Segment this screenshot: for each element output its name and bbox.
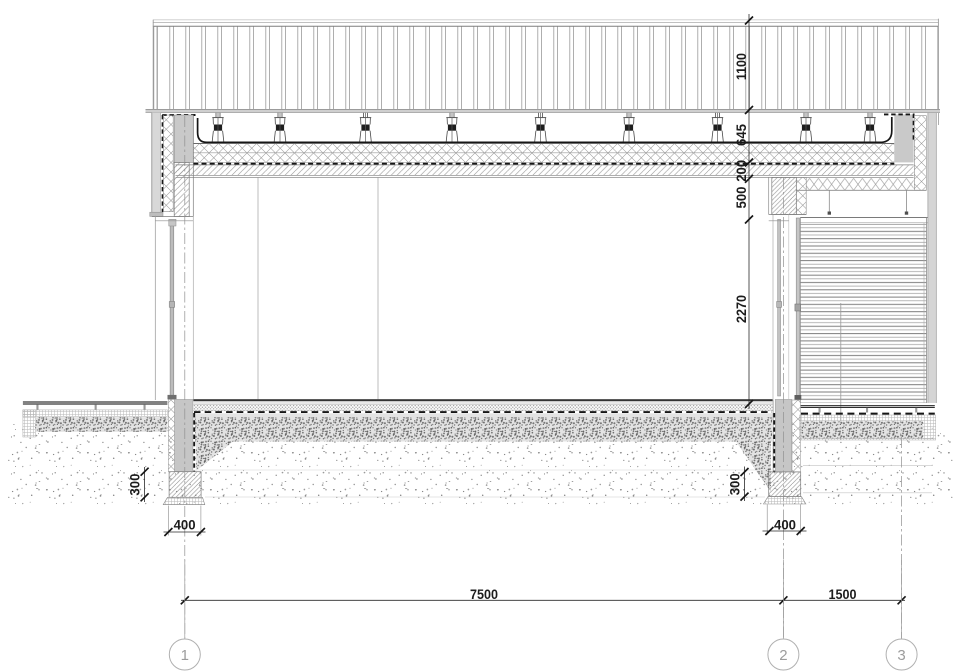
svg-text:2270: 2270: [733, 295, 749, 323]
svg-text:1100: 1100: [733, 53, 749, 80]
svg-text:7500: 7500: [470, 586, 498, 602]
svg-text:400: 400: [174, 517, 196, 533]
svg-text:200: 200: [733, 160, 749, 182]
svg-text:645: 645: [733, 124, 749, 146]
svg-text:3: 3: [897, 647, 905, 664]
svg-text:500: 500: [733, 186, 749, 208]
svg-text:1500: 1500: [829, 586, 857, 602]
svg-text:1: 1: [181, 647, 189, 664]
svg-text:300: 300: [127, 473, 143, 495]
svg-text:300: 300: [727, 473, 743, 495]
svg-text:400: 400: [774, 516, 796, 532]
svg-text:2: 2: [779, 647, 787, 664]
